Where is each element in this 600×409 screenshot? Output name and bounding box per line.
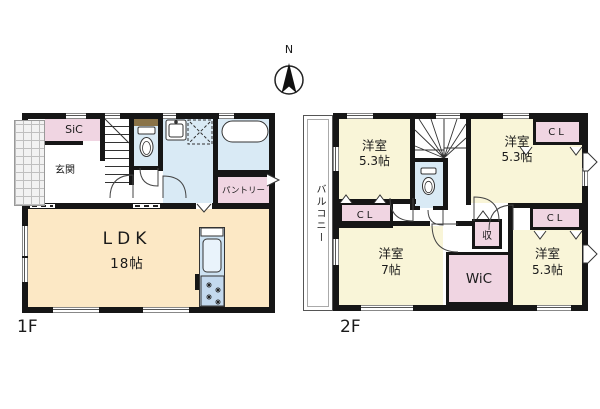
ldk-opening — [196, 203, 212, 209]
ldk-sliding-door — [133, 204, 160, 208]
room-label-genkan: 玄関 — [48, 161, 82, 176]
room-toilet-1f — [134, 119, 158, 166]
floor-plan-page: N SiC 玄関 パントリー LDK 18帖 1F バルコ — [0, 0, 600, 409]
room-closet-e: CL — [530, 206, 582, 230]
closet-nw-label: CL — [357, 210, 376, 221]
floor2-label: 2F — [340, 317, 370, 337]
room-bathroom — [218, 119, 269, 170]
window — [436, 113, 460, 119]
room-size-bedroom-ne: 5.3帖 — [478, 148, 556, 165]
room-toilet-2f — [415, 162, 443, 208]
compass-icon — [275, 63, 303, 94]
compass-north-label: N — [281, 43, 297, 56]
room-label-pantry: パントリー — [218, 184, 269, 196]
window — [582, 168, 588, 186]
toilet-shelf — [134, 119, 158, 126]
room-wic: WiC — [446, 252, 512, 305]
window — [537, 305, 571, 311]
stairs-2f — [415, 119, 466, 161]
window — [22, 226, 28, 256]
room-size-bedroom-nw: 5.3帖 — [339, 152, 410, 169]
window — [163, 113, 176, 119]
window — [503, 113, 529, 119]
room-size-ldk: 18帖 — [47, 252, 207, 272]
window — [361, 305, 413, 311]
room-label-bedroom-sw: 洋室 — [339, 243, 443, 262]
window — [105, 113, 120, 119]
closet-e-label: CL — [547, 213, 566, 224]
room-size-bedroom-se: 5.3帖 — [510, 261, 585, 278]
room-label-balcony: バルコニー — [312, 158, 327, 270]
room-size-bedroom-sw: 7帖 — [339, 261, 443, 278]
room-label-bedroom-se: 洋室 — [510, 243, 585, 262]
floor1-label: 1F — [17, 317, 47, 337]
window — [219, 113, 234, 119]
storage-label: 収 — [482, 227, 492, 242]
entrance-porch — [14, 120, 45, 206]
window — [22, 258, 28, 282]
wic-label: WiC — [466, 271, 492, 287]
stairs-1f — [105, 119, 130, 189]
window — [347, 113, 373, 119]
window — [53, 307, 99, 313]
window — [143, 307, 189, 313]
room-label-sic: SiC — [45, 119, 103, 141]
room-storage: 収 — [472, 219, 502, 249]
room-washroom — [163, 119, 213, 203]
room-label-ldk: LDK — [47, 229, 207, 249]
